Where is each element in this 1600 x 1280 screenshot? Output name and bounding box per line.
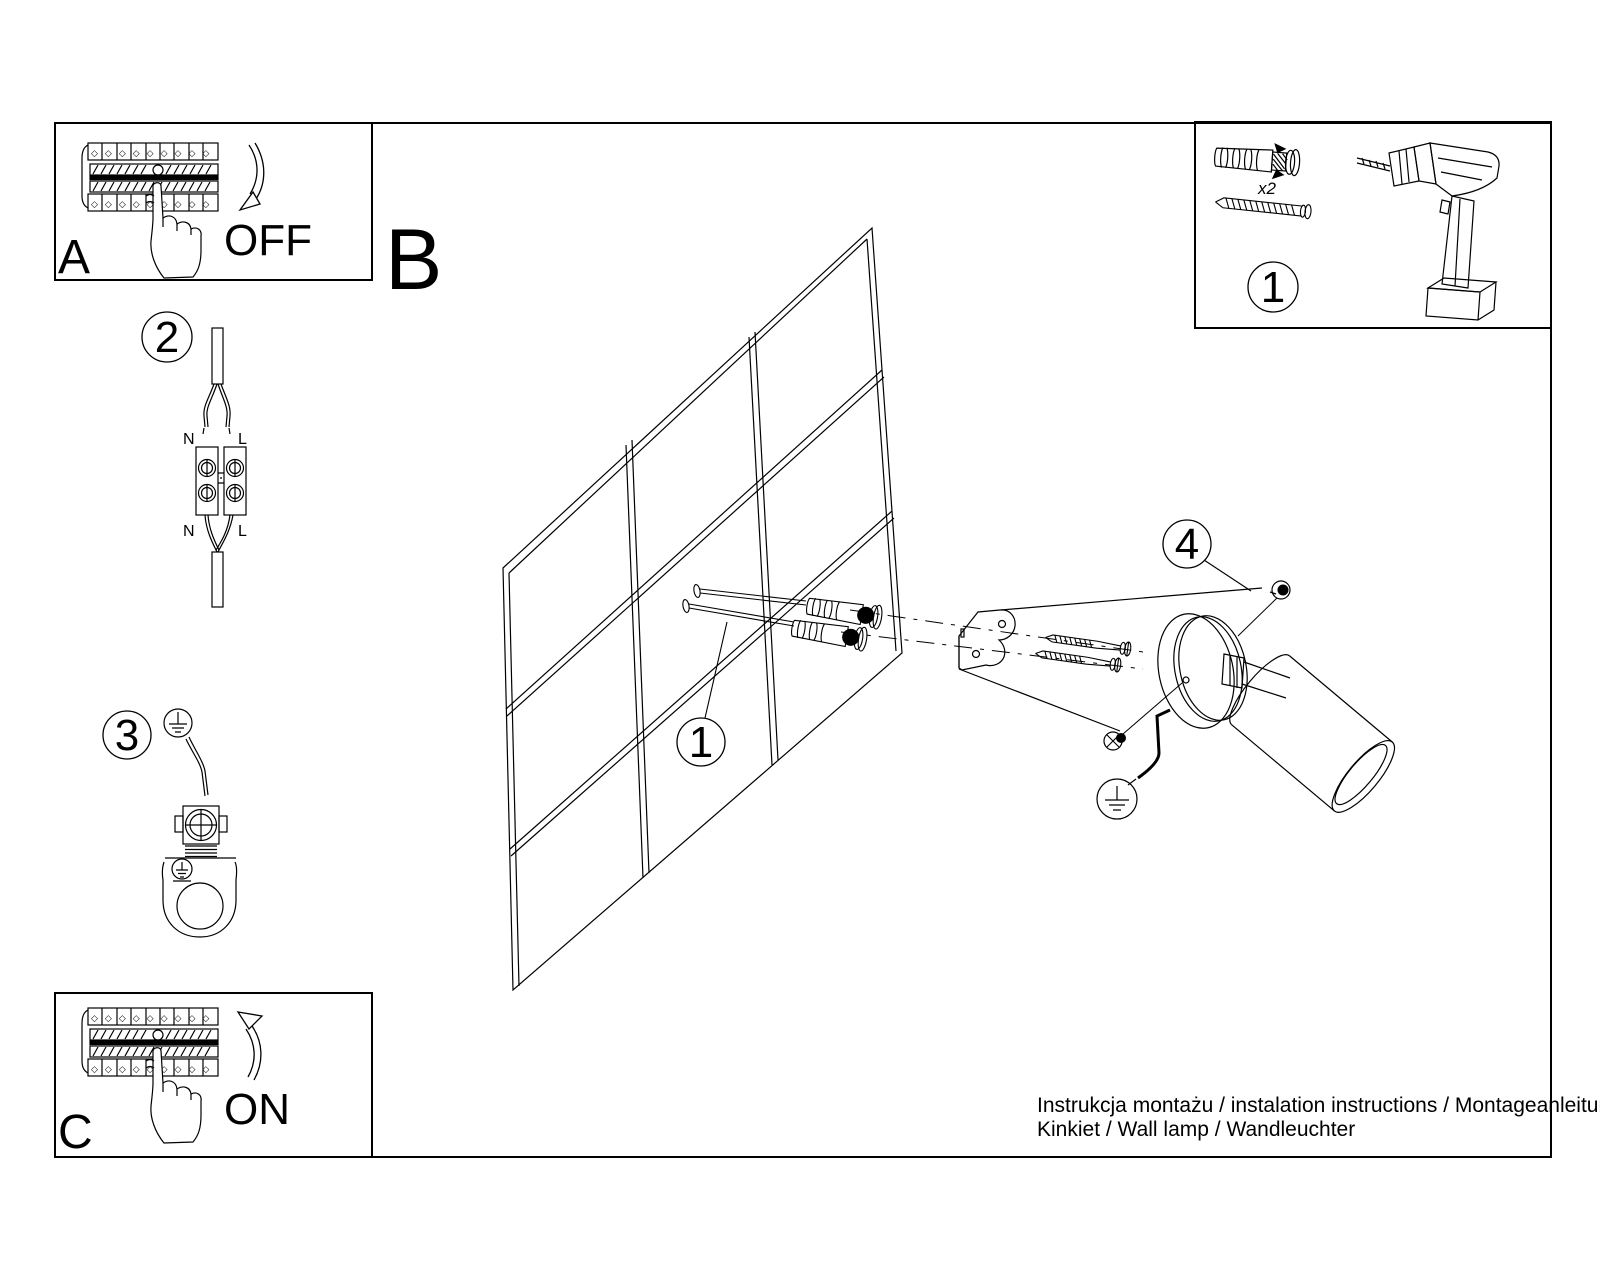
screw-head <box>682 599 690 613</box>
footer-line-2: Kinkiet / Wall lamp / Wandleuchter <box>1037 1118 1355 1141</box>
wire-label-n-bottom: N <box>183 523 195 540</box>
breaker-hatch-top <box>93 165 211 174</box>
breaker-panel-drawing: ◇◇◇◇◇◇◇◇◇ ◇◇◇◇◇◇◇◇◇ <box>82 143 218 278</box>
frame-borders <box>55 122 1551 1157</box>
box-a-label: A <box>58 231 90 284</box>
footer-line-1: Instrukcja montażu / instalation instruc… <box>1037 1094 1600 1117</box>
diagram-canvas: ◇◇◇◇◇◇◇◇◇ ◇◇◇◇◇◇◇◇◇ A OFF C ON <box>0 0 1600 1280</box>
lamp-head <box>1221 647 1404 821</box>
instruction-sheet: ◇◇◇◇◇◇◇◇◇ ◇◇◇◇◇◇◇◇◇ A OFF C ON <box>0 0 1600 1280</box>
assembly-line-bottom <box>959 669 1120 731</box>
on-label: ON <box>224 1085 290 1134</box>
wire-label-n-top: N <box>183 431 195 448</box>
callout-2: 2 <box>155 313 179 362</box>
arrow-up-icon <box>238 1012 262 1029</box>
fixing-screw-bottom <box>1104 683 1182 750</box>
earth-wire <box>1138 710 1170 778</box>
breaker-left-edge <box>82 145 88 208</box>
breaker-diamond-row: ◇◇◇◇◇◇◇◇◇ <box>91 149 216 159</box>
wall-panels <box>503 228 902 990</box>
tile-joint-v1 <box>626 440 649 878</box>
section-b-label: B <box>385 212 442 308</box>
arrow-down-icon <box>240 192 260 210</box>
anchor-quantity: x2 <box>1257 179 1277 198</box>
assembly-line-top <box>1001 588 1262 610</box>
off-label: OFF <box>224 216 312 265</box>
lamp-backplate <box>162 858 236 937</box>
mount-screw <box>1035 647 1122 673</box>
callout-3: 3 <box>115 711 139 760</box>
wire-label-l-bottom: L <box>238 523 247 540</box>
wire-label-l-top: L <box>238 431 247 448</box>
callout-1-tools: 1 <box>1261 263 1285 312</box>
leader-line-1 <box>705 622 727 718</box>
earth-symbol-lamp-icon <box>1097 779 1137 819</box>
mounting-bracket <box>959 610 1015 670</box>
tools-box: x2 1 <box>1214 140 1500 320</box>
box-c-label: C <box>58 1106 93 1159</box>
box-b-border <box>372 123 1551 1157</box>
breaker-hatch-bottom <box>93 182 210 191</box>
screw-head <box>693 584 701 598</box>
wall-fixing-parts: 1 <box>677 584 883 767</box>
tools-box-border <box>1195 122 1551 328</box>
drill-icon <box>1357 143 1499 320</box>
terminal-block-n <box>196 447 218 515</box>
breaker-dark-band <box>90 176 218 180</box>
callout-1-wall: 1 <box>689 718 713 767</box>
cable-bottom <box>212 552 223 607</box>
leader-line-4 <box>1204 560 1251 591</box>
mounting-bracket-group <box>959 588 1262 731</box>
terminal-block-l <box>224 447 246 515</box>
wall-lamp-group: 4 <box>1097 520 1404 821</box>
tile-joint-h2 <box>510 511 894 856</box>
lamp-arm <box>1242 662 1290 698</box>
wall-plug-icon <box>1214 140 1301 180</box>
cable-top <box>212 328 223 384</box>
breaker-toggle <box>153 165 163 175</box>
step-3-ground: 3 <box>103 709 237 937</box>
tile-joint-v2 <box>749 332 778 765</box>
tile-joint-h1 <box>506 370 884 716</box>
step-2-wiring: 2 N L N L <box>142 312 247 607</box>
callout-4: 4 <box>1175 520 1199 569</box>
breaker-panel-drawing-c <box>82 1008 218 1143</box>
screw-icon <box>1215 195 1312 219</box>
pointing-hand <box>151 183 201 278</box>
